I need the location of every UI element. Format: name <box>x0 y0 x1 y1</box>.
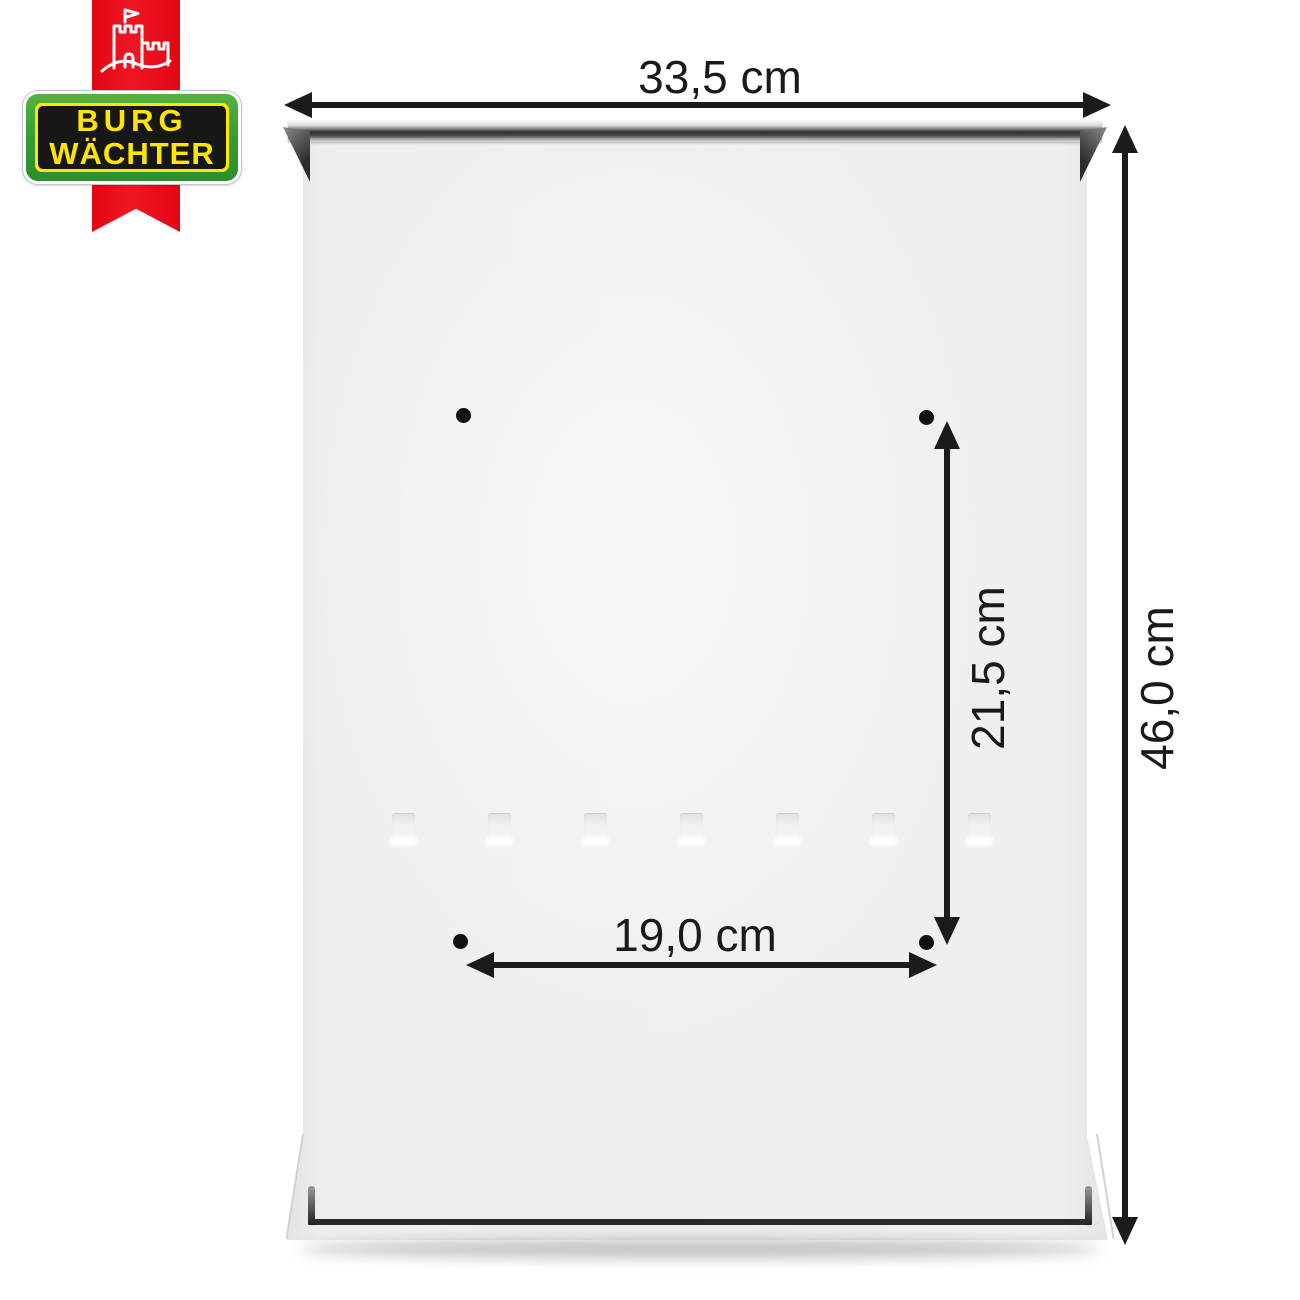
arrow-down-icon <box>1112 1217 1138 1245</box>
mounting-hole-top-left <box>456 408 471 423</box>
embossed-slot <box>872 813 895 843</box>
mounting-hole-bottom-left <box>453 934 468 949</box>
embossed-slot <box>968 813 991 843</box>
embossed-slot <box>680 813 703 843</box>
product-dimension-image: { "brand": { "name_line1": "BURG", "name… <box>0 0 1300 1300</box>
mailbox-bottom-clip-right <box>1085 1186 1092 1225</box>
brand-name-line2: WÄCHTER <box>49 139 214 169</box>
embossed-slot <box>488 813 511 843</box>
mailbox-bottom-clip-left <box>308 1186 315 1225</box>
arrow-right-icon <box>909 952 937 978</box>
height-dimension-label: 46,0 cm <box>1135 588 1179 788</box>
mailbox-bottom-rail <box>311 1219 1089 1225</box>
brand-badge: BURG WÄCHTER <box>23 91 241 184</box>
arrow-right-icon <box>1083 92 1111 118</box>
arrow-down-icon <box>934 917 960 945</box>
hole-spacing-vertical-arrow <box>934 421 960 945</box>
mailbox-top-edge <box>288 121 1102 142</box>
badge-black-field: BURG WÄCHTER <box>38 106 226 169</box>
mounting-hole-top-right <box>919 410 934 425</box>
brand-name-line1: BURG <box>76 106 187 136</box>
embossed-slot <box>584 813 607 843</box>
embossed-slot <box>392 813 415 843</box>
hole-spacing-horizontal-label: 19,0 cm <box>545 908 845 962</box>
castle-icon <box>97 5 173 79</box>
hole-spacing-vertical-label: 21,5 cm <box>966 568 1010 768</box>
width-dimension-label: 33,5 cm <box>560 50 880 104</box>
embossed-slot <box>776 813 799 843</box>
mounting-hole-bottom-right <box>919 935 934 950</box>
drop-shadow <box>298 1240 1102 1258</box>
